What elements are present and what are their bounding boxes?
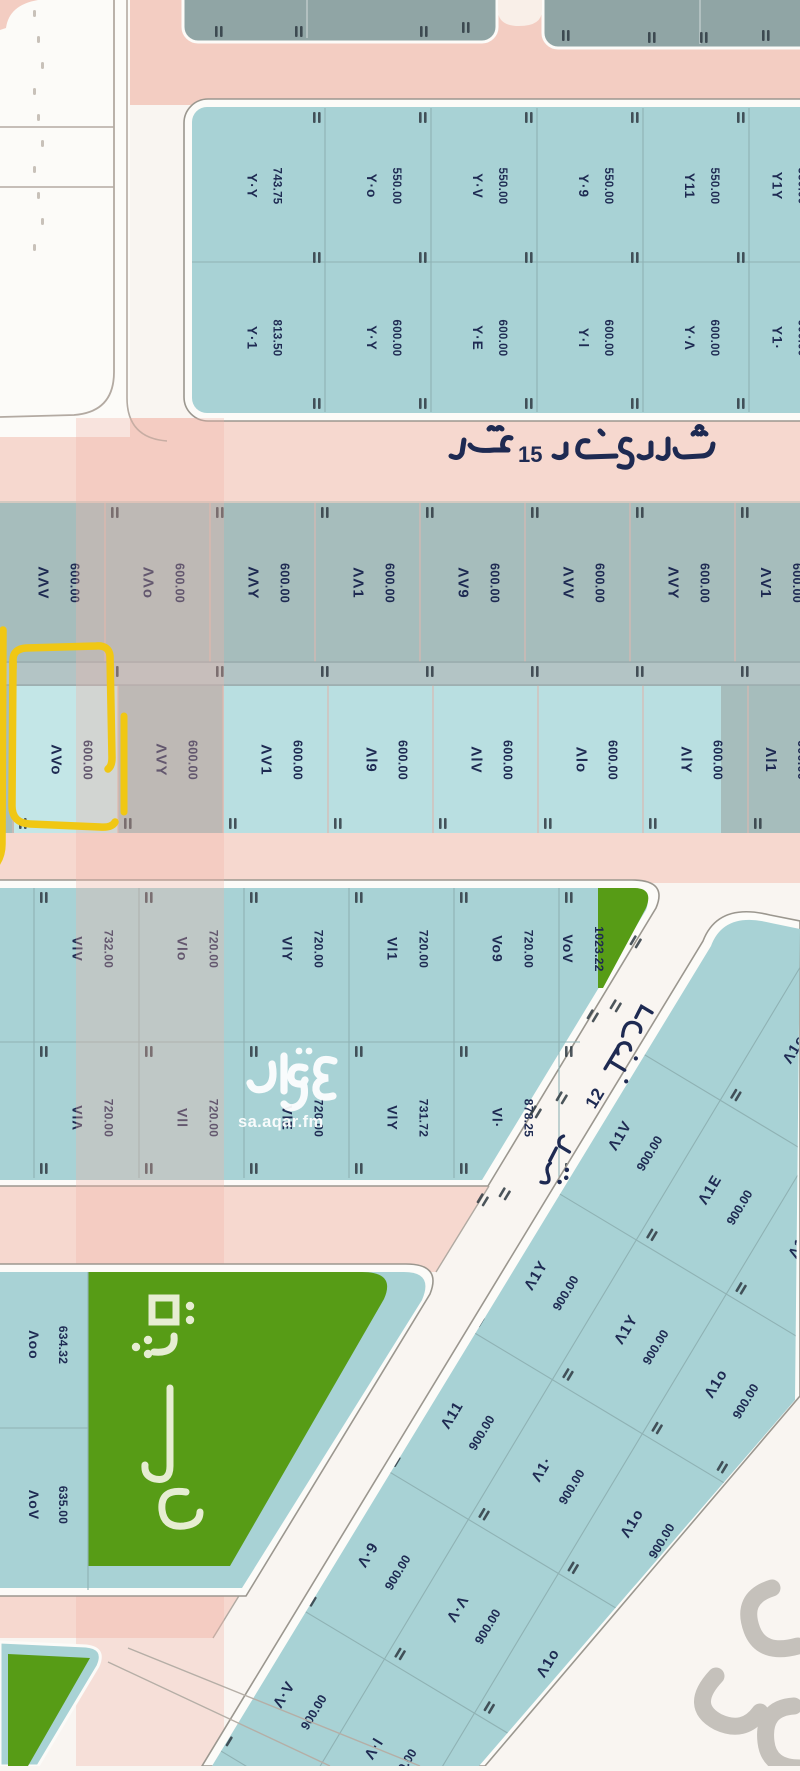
svg-text:550.00: 550.00 bbox=[496, 168, 508, 205]
svg-text:Y·Y: Y·Y bbox=[245, 173, 260, 199]
svg-text:600.00: 600.00 bbox=[593, 563, 607, 603]
svg-text:720.00: 720.00 bbox=[312, 930, 326, 969]
svg-text:550.00: 550.00 bbox=[602, 168, 614, 205]
svg-text:1023.22: 1023.22 bbox=[592, 926, 606, 972]
svg-text:600.00: 600.00 bbox=[698, 563, 712, 603]
svg-text:ΛV9: ΛV9 bbox=[455, 567, 472, 598]
svg-text:VlY: VlY bbox=[280, 936, 296, 962]
svg-text:600.00: 600.00 bbox=[496, 320, 508, 357]
svg-text:600.00: 600.00 bbox=[602, 320, 614, 357]
svg-text:ΛΛY: ΛΛY bbox=[245, 566, 262, 599]
svg-text:Y·E: Y·E bbox=[470, 325, 485, 351]
svg-text:600.00: 600.00 bbox=[278, 563, 292, 603]
svg-text:Vo9: Vo9 bbox=[490, 935, 506, 963]
svg-text:Y11: Y11 bbox=[682, 173, 697, 199]
svg-text:ΛV1: ΛV1 bbox=[757, 567, 774, 598]
svg-text:ΛlY: ΛlY bbox=[678, 746, 695, 773]
svg-text:Vl·: Vl· bbox=[490, 1108, 506, 1129]
svg-text:Y1Y: Y1Y bbox=[770, 172, 785, 201]
svg-text:Λl1: Λl1 bbox=[762, 747, 779, 773]
svg-text:550.00: 550.00 bbox=[708, 168, 720, 205]
svg-text:Y·o: Y·o bbox=[364, 174, 379, 199]
svg-text:550.00: 550.00 bbox=[390, 168, 402, 205]
svg-text:720.00: 720.00 bbox=[417, 930, 431, 969]
svg-text:600.00: 600.00 bbox=[711, 740, 725, 780]
svg-text:550.00: 550.00 bbox=[796, 168, 800, 205]
svg-text:600.00: 600.00 bbox=[501, 740, 515, 780]
svg-text:600.00: 600.00 bbox=[606, 740, 620, 780]
svg-text:600.00: 600.00 bbox=[390, 320, 402, 357]
svg-text:731.72: 731.72 bbox=[417, 1099, 431, 1138]
svg-text:813.50: 813.50 bbox=[271, 320, 283, 357]
svg-text:600.00: 600.00 bbox=[790, 563, 800, 603]
svg-text:ΛΛ1: ΛΛ1 bbox=[350, 567, 367, 598]
svg-text:Λl9: Λl9 bbox=[363, 747, 380, 773]
svg-text:Y·Y: Y·Y bbox=[364, 325, 379, 351]
svg-text:600.00: 600.00 bbox=[396, 740, 410, 780]
svg-text:600.00: 600.00 bbox=[796, 320, 800, 357]
svg-text:ΛlV: ΛlV bbox=[468, 746, 485, 773]
svg-text:720.00: 720.00 bbox=[522, 930, 536, 969]
svg-text:ΛV1: ΛV1 bbox=[258, 744, 275, 775]
svg-text:600.00: 600.00 bbox=[795, 740, 800, 780]
svg-text:Y·Λ: Y·Λ bbox=[682, 325, 697, 351]
svg-text:VoV: VoV bbox=[560, 934, 576, 963]
svg-text:Y·1: Y·1 bbox=[245, 326, 260, 350]
svg-text:600.00: 600.00 bbox=[291, 740, 305, 780]
svg-text:Λoo: Λoo bbox=[26, 1330, 42, 1359]
svg-text:ΛVV: ΛVV bbox=[560, 566, 577, 599]
svg-text:743.75: 743.75 bbox=[271, 168, 283, 205]
svg-text:600.00: 600.00 bbox=[708, 320, 720, 357]
svg-text:Y·V: Y·V bbox=[470, 173, 485, 199]
svg-text:Vl1: Vl1 bbox=[385, 937, 401, 961]
svg-text:ΛΛV: ΛΛV bbox=[35, 566, 52, 599]
svg-text:878.25: 878.25 bbox=[522, 1099, 536, 1138]
svg-text:Y·l: Y·l bbox=[576, 328, 591, 348]
svg-text:Λlo: Λlo bbox=[573, 747, 590, 773]
svg-text:634.32: 634.32 bbox=[56, 1326, 70, 1365]
svg-text:ΛoV: ΛoV bbox=[26, 1490, 42, 1520]
svg-text:635.00: 635.00 bbox=[56, 1486, 70, 1525]
svg-text:600.00: 600.00 bbox=[488, 563, 502, 603]
svg-text:Y·9: Y·9 bbox=[576, 174, 591, 198]
svg-text:15: 15 bbox=[518, 442, 542, 467]
svg-text:600.00: 600.00 bbox=[383, 563, 397, 603]
svg-text:sa.aqar.fm: sa.aqar.fm bbox=[238, 1113, 324, 1131]
svg-text:ΛVY: ΛVY bbox=[665, 566, 682, 599]
svg-text:VlY: VlY bbox=[385, 1105, 401, 1131]
svg-text:ΛVo: ΛVo bbox=[48, 744, 65, 775]
svg-text:Y1·: Y1· bbox=[770, 326, 785, 350]
